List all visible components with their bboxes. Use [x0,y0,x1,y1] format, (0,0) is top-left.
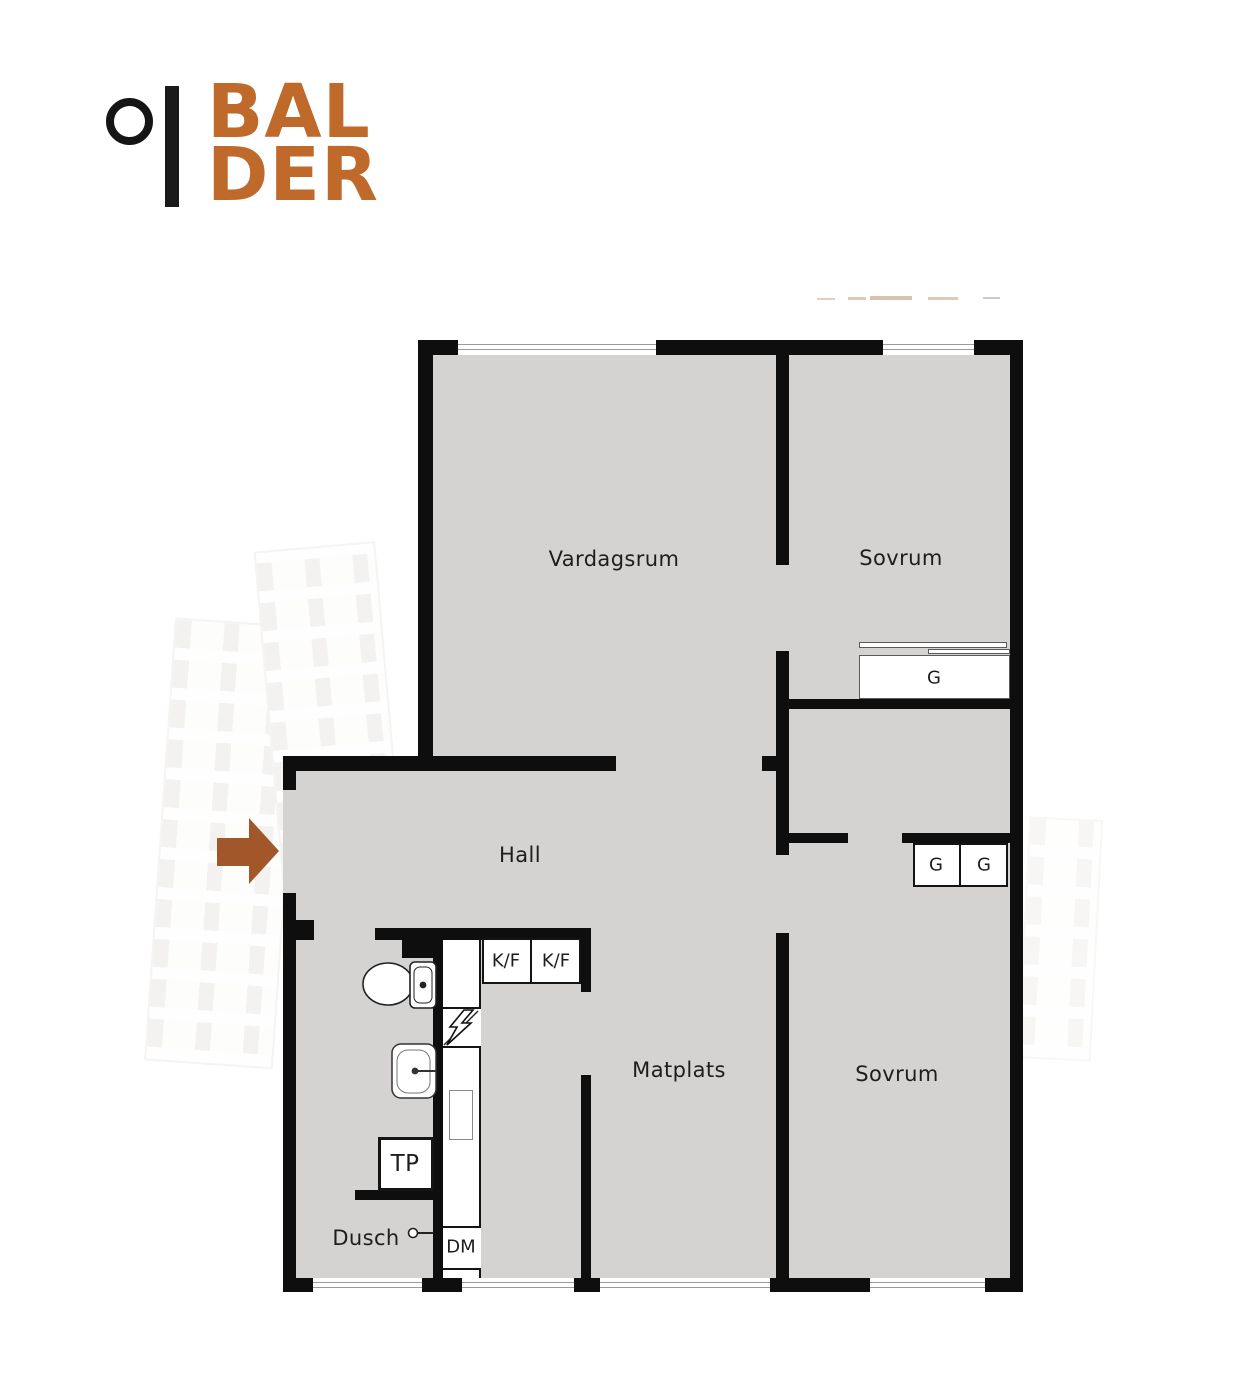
wall [581,938,591,992]
room-label-vardagsrum: Vardagsrum [549,547,680,571]
wardrobe-label: G [927,668,941,689]
dishwasher-label: DM [446,1237,475,1258]
window [313,1278,422,1292]
bathroom-sink-icon [390,1042,438,1100]
logo-text-line2: DER [207,138,379,212]
wardrobe-label: G [929,855,943,876]
wall [283,756,616,771]
window [870,1278,985,1292]
wall [283,756,296,790]
window [600,1278,770,1292]
wall [776,350,789,565]
toilet-icon [360,960,438,1010]
wall [783,699,1010,709]
wardrobe-label: G [977,855,991,876]
fridge-freezer-label: K/F [542,951,570,972]
laundry-unit-label: TP [391,1151,420,1177]
shower-valve-icon [406,1222,436,1244]
wall [283,1278,313,1292]
logo-bar-icon [165,86,179,207]
floor-entrance-gap [283,790,296,893]
fridge-freezer-label: K/F [492,951,520,972]
room-label-dusch: Dusch [332,1226,399,1250]
room-label-sovrum-1: Sovrum [859,546,942,570]
sliding-door-rail [928,649,1010,654]
wall [776,651,789,855]
room-label-matplats: Matplats [632,1058,726,1082]
room-label-hall: Hall [499,843,541,867]
counter-inset [449,1090,473,1140]
room-label-sovrum-2: Sovrum [855,1062,938,1086]
wall [418,340,433,768]
window [883,340,974,355]
wall [422,1278,462,1292]
wall [581,1075,591,1285]
wall [1010,340,1023,1292]
wall [902,833,1010,843]
electrical-cabinet [443,1007,481,1048]
window [458,340,656,355]
wall [776,933,789,1285]
wall [776,833,848,843]
floorplan-page: BAL DER [0,0,1239,1388]
wall [985,1278,1023,1292]
lightning-bolt-icon [443,1009,479,1046]
background-sketch-right [1023,818,1095,1058]
sliding-door-rail [859,642,1007,648]
wall [283,893,296,1292]
wall [355,1190,434,1200]
logo-circle-icon [106,98,153,145]
wall [296,920,314,940]
window [462,1278,574,1292]
wall [656,340,883,355]
